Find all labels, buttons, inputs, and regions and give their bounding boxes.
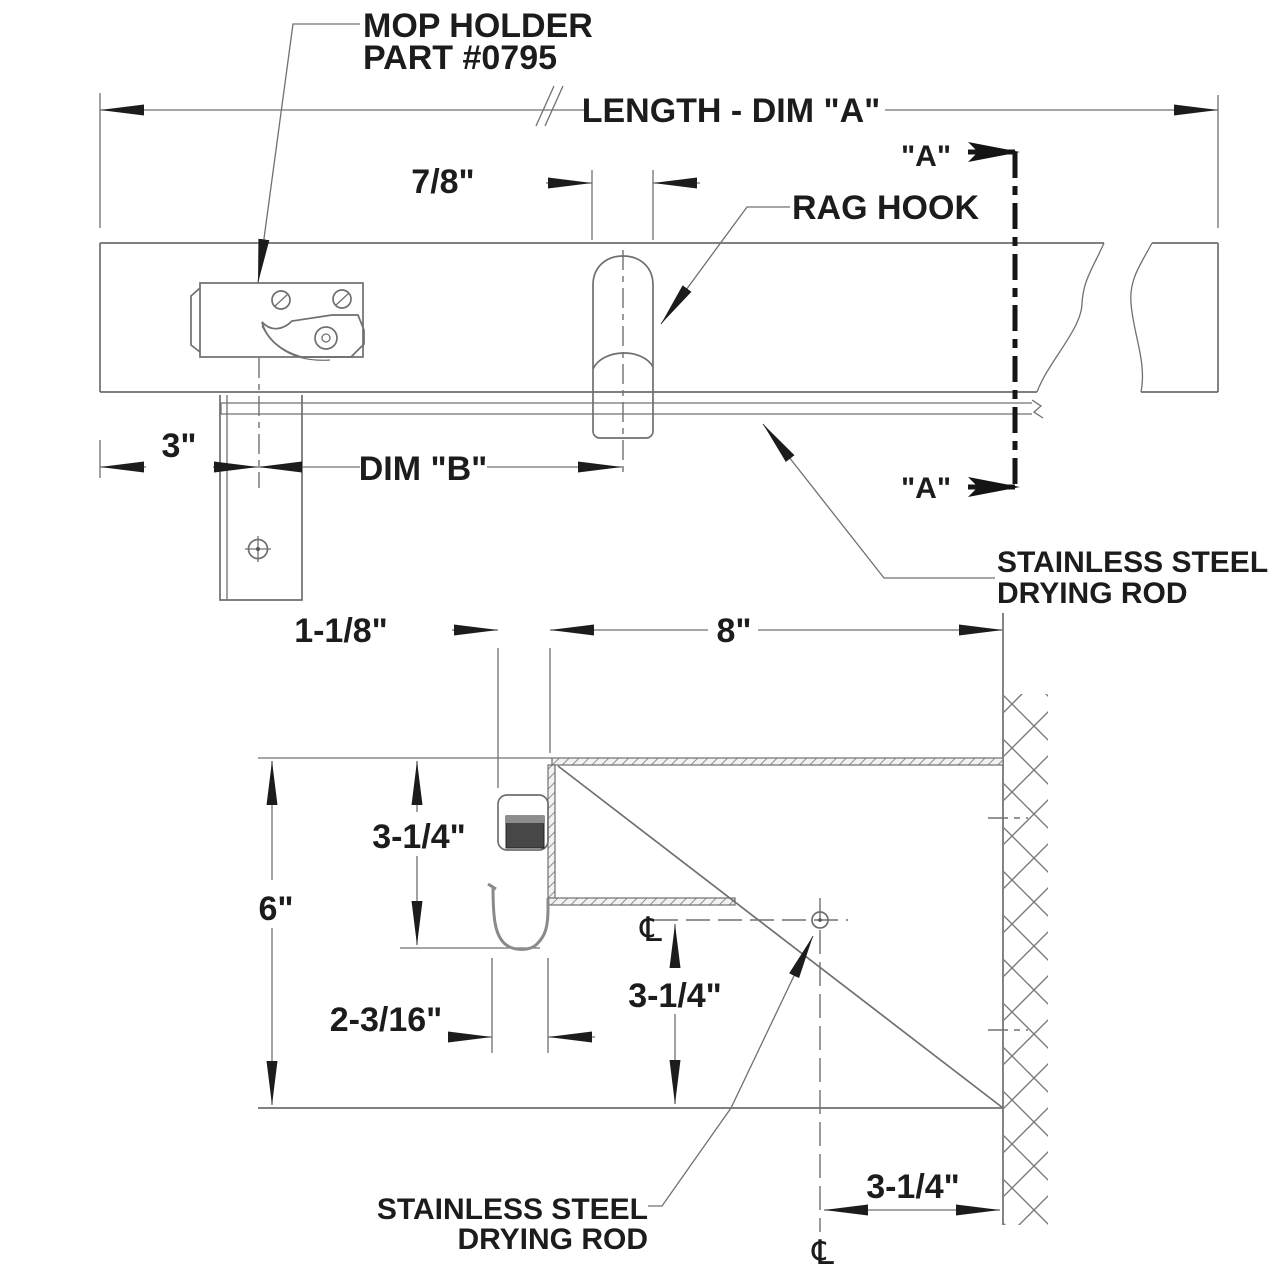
rod-wall-offset-dimension: 3-1/4" xyxy=(824,1168,1000,1210)
hole-center xyxy=(256,547,260,551)
hook-width-dimension: 7/8" xyxy=(411,163,700,240)
cam-pivot xyxy=(315,327,337,349)
break-line-right xyxy=(1131,243,1152,392)
technical-drawing-page: LENGTH - DIM "A" 7/8" MOP HOLDER PART #0… xyxy=(0,0,1280,1280)
hook-width-label: 7/8" xyxy=(411,163,474,201)
drying-rod-front xyxy=(221,400,1043,418)
rod-label-line1: STAINLESS STEEL xyxy=(997,546,1268,579)
length-dim-label: LENGTH - DIM "A" xyxy=(582,92,881,130)
shelf-top-flange xyxy=(552,758,1003,765)
rod-drop-dimension: 3-1/4" xyxy=(628,924,722,1104)
mop-holder-callout: MOP HOLDER PART #0795 xyxy=(258,7,593,283)
hook-depth-dimension: 2-3/16" xyxy=(330,958,595,1053)
hook-depth-label: 2-3/16" xyxy=(330,1001,443,1039)
wall xyxy=(988,613,1048,1225)
mop-holder-label-line2: PART #0795 xyxy=(363,39,557,77)
rag-hook-callout: RAG HOOK xyxy=(661,189,979,324)
spacing-dim-label: DIM "B" xyxy=(359,450,488,488)
rag-hook-label: RAG HOOK xyxy=(792,189,979,227)
rod-callout-right: STAINLESS STEEL DRYING ROD xyxy=(763,424,1268,610)
left-offset-dimension: 3" xyxy=(100,427,258,478)
centerline-symbol: ℄ xyxy=(639,910,662,950)
wall-bracket-front xyxy=(220,358,302,600)
shelf-depth-dimension: 8" xyxy=(550,612,1003,650)
rod-center-dot xyxy=(818,918,822,922)
rod-drop-label: 3-1/4" xyxy=(628,977,722,1015)
holder-depth-dimension: 1-1/8" xyxy=(294,612,550,788)
rag-hook-front xyxy=(593,250,653,478)
cam-grip xyxy=(262,315,364,357)
break-line-left xyxy=(1037,243,1104,392)
diagonal-brace xyxy=(558,766,1003,1108)
screw-slot xyxy=(275,294,288,306)
spacing-dimension: DIM "B" xyxy=(258,450,622,488)
mop-holder-rack-drawing: LENGTH - DIM "A" 7/8" MOP HOLDER PART #0… xyxy=(0,0,1280,1280)
left-offset-label: 3" xyxy=(161,427,196,465)
holder-depth-label: 1-1/8" xyxy=(294,612,388,650)
wall-hatch xyxy=(1004,694,1048,1225)
rod-break-symbol xyxy=(1032,400,1043,418)
holder-drop-dimension: 3-1/4" xyxy=(372,761,466,945)
shelf-depth-label: 8" xyxy=(716,612,751,650)
board-outline xyxy=(100,243,1218,392)
centerline-symbol: ℄ xyxy=(811,1233,834,1273)
rod-label-line2: DRYING ROD xyxy=(997,577,1188,610)
mop-holder-front xyxy=(191,283,364,360)
holder-cam-top xyxy=(506,816,544,823)
mop-holder-end-cap xyxy=(191,288,200,352)
mop-holder-body xyxy=(200,283,363,357)
shelf-bottom-flange xyxy=(548,898,735,905)
rod-label-line1: STAINLESS STEEL xyxy=(377,1193,648,1226)
section-view: ℄ ℄ 1-1/8" 8" 3-1/4" 6" xyxy=(258,612,1048,1273)
rod-label-line2: DRYING ROD xyxy=(457,1223,648,1256)
dim-jog-symbol xyxy=(536,86,563,126)
overall-height-dimension: 6" xyxy=(258,761,293,1105)
rag-hook-section xyxy=(488,884,548,949)
rod-callout-bottom: STAINLESS STEEL DRYING ROD xyxy=(377,936,813,1256)
shelf-web xyxy=(548,765,555,898)
drying-rod-section: ℄ ℄ xyxy=(639,898,848,1273)
mop-holder-section xyxy=(498,795,548,850)
shelf-section xyxy=(258,758,1003,1108)
cam-pivot-center xyxy=(322,334,330,342)
overall-height-label: 6" xyxy=(258,890,293,928)
section-marker-top: "A" xyxy=(901,140,951,173)
front-view: LENGTH - DIM "A" 7/8" MOP HOLDER PART #0… xyxy=(100,7,1268,610)
holder-drop-label: 3-1/4" xyxy=(372,818,466,856)
rod-wall-offset-label: 3-1/4" xyxy=(866,1168,960,1206)
section-marker-bottom: "A" xyxy=(901,472,951,505)
screw-slot xyxy=(336,293,349,305)
